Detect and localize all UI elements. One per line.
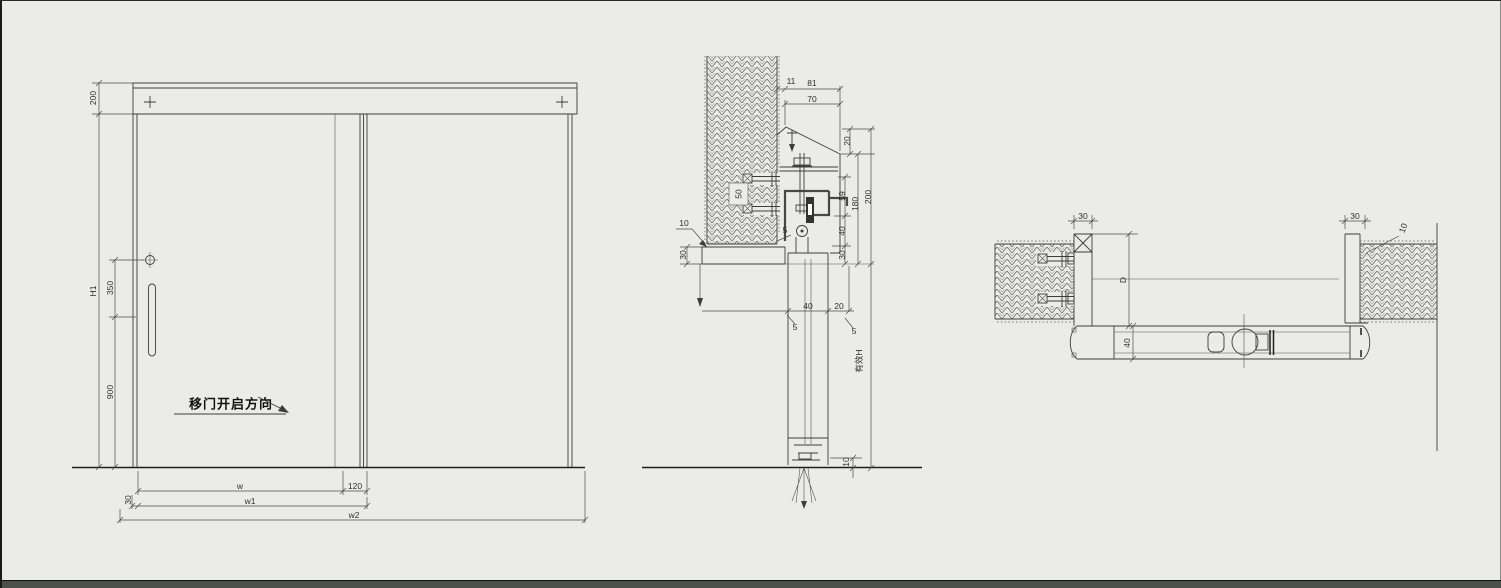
dim-handle-offset: 350 [105, 281, 115, 295]
sheet-bottom-band [2, 580, 1501, 588]
dim-right-59: 59 [837, 191, 847, 201]
plan-left-jamb-dimension: 30 [1068, 211, 1098, 229]
dim-right-jamb: 30 [1350, 211, 1360, 221]
ceiling-band [697, 247, 874, 307]
dim-top-81: 81 [807, 78, 817, 88]
door-header-box [133, 83, 577, 114]
dim-door-height: H1 [88, 285, 98, 296]
plan-view: 30 D [995, 211, 1437, 451]
dim-header-height: 200 [88, 91, 98, 105]
anchor-spacing-box: 50 [729, 183, 748, 205]
cad-drawing: 200 H1 350 900 w 120 30 w1 w2 移门开启方向 [2, 1, 1501, 588]
dim-mid-40: 40 [803, 301, 813, 311]
elevation-view: 200 H1 350 900 w 120 30 w1 w2 移门开启方向 [72, 80, 588, 523]
dim-mid-20: 20 [834, 301, 844, 311]
dim-right-40: 40 [837, 226, 847, 236]
dim-right-30: 30 [837, 250, 847, 260]
plan-anchor-bolt-upper [1036, 251, 1074, 267]
direction-note-text: 移门开启方向 [189, 397, 273, 412]
elevation-left-dimensions: 200 H1 350 900 [88, 80, 144, 470]
dim-wall-anchor: 50 [734, 189, 744, 199]
mount-plate [780, 166, 838, 171]
dim-leader-5c: 5 [783, 225, 788, 235]
wall-hatch [707, 56, 777, 244]
section-view: 50 [642, 56, 922, 509]
dim-edge-margin: 30 [123, 495, 133, 505]
plan-anchor-bolt-lower [1036, 291, 1074, 307]
section-right-dimensions: 20 59 40 30 180 200 有效H [832, 126, 875, 471]
direction-annotation: 移门开启方向 [174, 397, 289, 415]
door-handle [142, 252, 158, 356]
dim-leader-5a: 5 [793, 322, 798, 332]
drawing-sheet: 200 H1 350 900 w 120 30 w1 w2 移门开启方向 [0, 0, 1501, 588]
plus-mark-left [144, 96, 156, 108]
floor-anchor [792, 468, 816, 506]
plus-mark-right [556, 96, 568, 108]
dim-ceiling-band: 30 [678, 250, 688, 260]
dim-right-200: 200 [863, 190, 873, 204]
dim-left-jamb: 30 [1078, 211, 1088, 221]
dim-clear-width: w [236, 481, 244, 491]
plan-left-jamb [1074, 234, 1092, 326]
dim-effective-height: 有效H [854, 349, 864, 372]
dim-handle-height: 900 [105, 385, 115, 399]
dim-top-70: 70 [807, 94, 817, 104]
dim-floor-gap: 10 [841, 457, 851, 467]
dim-leaf-width: w1 [244, 496, 256, 506]
dim-door-thickness: 40 [1122, 338, 1132, 348]
wall-hatch [1360, 244, 1437, 319]
top-anchor-bolt [787, 130, 797, 146]
dim-top-11: 11 [787, 76, 796, 86]
dim-overall-width: w2 [348, 510, 360, 520]
plan-opening-dimension: D [1092, 231, 1339, 329]
section-top-dimensions: 11 81 70 [774, 76, 843, 151]
lock-assembly [1208, 314, 1274, 368]
dim-right-180: 180 [850, 197, 860, 211]
lock-cylinder [1232, 329, 1258, 355]
dim-wall-gap: 10 [1397, 222, 1410, 235]
section-floor-gap-dimension: 10 [830, 455, 862, 478]
door-right-endcap [1350, 323, 1370, 359]
dim-right-20: 20 [842, 136, 852, 146]
dim-leader-5b: 5 [852, 326, 857, 336]
section-wall [705, 56, 779, 244]
plan-right-wall [1360, 223, 1437, 451]
steel-tube-cross [1074, 234, 1092, 252]
dim-left-offset: 10 [679, 218, 689, 228]
elevation-bottom-dimensions: w 120 30 w1 w2 [117, 471, 588, 523]
floor-guide [792, 445, 822, 460]
door-leaf-section [788, 253, 828, 509]
dim-opening-depth: D [1118, 277, 1128, 283]
dim-overlap: 120 [348, 481, 362, 491]
plan-door-panel: 40 [1070, 314, 1370, 368]
